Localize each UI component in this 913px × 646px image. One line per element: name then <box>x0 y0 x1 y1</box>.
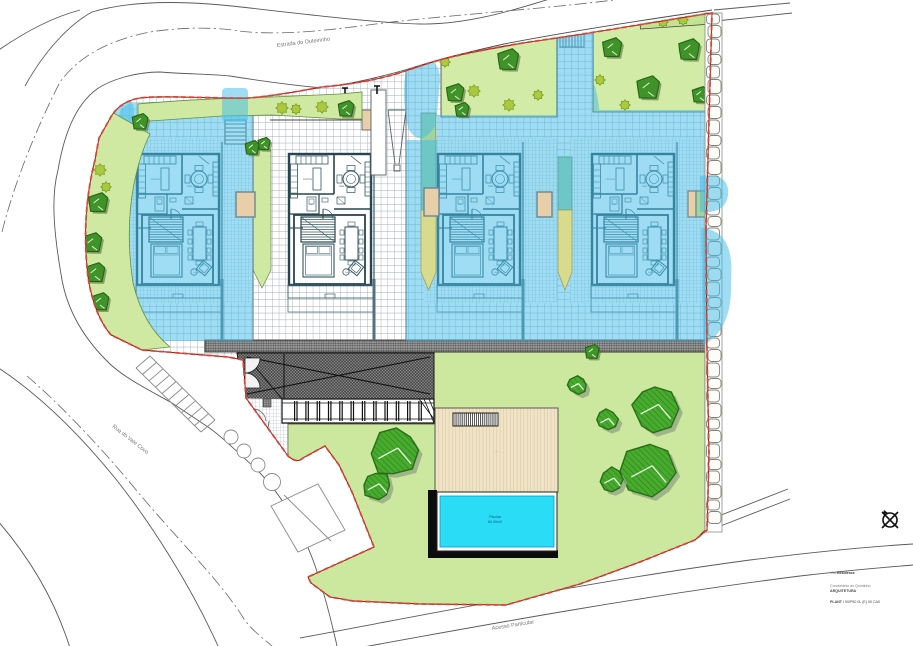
svg-text:ARQUITETURA: ARQUITETURA <box>830 589 857 593</box>
svg-text:Piscina: Piscina <box>489 515 501 519</box>
svg-text:PLANT I 00/P50 0L (E) 00 CA0: PLANT I 00/P50 0L (E) 00 CA0 <box>830 600 880 604</box>
svg-text:60.00m2: 60.00m2 <box>488 520 502 524</box>
svg-text:Condominio do Quintinho: Condominio do Quintinho <box>830 584 871 588</box>
svg-text:...: ... <box>495 448 498 453</box>
svg-text:Vila Residence: Vila Residence <box>830 571 855 575</box>
